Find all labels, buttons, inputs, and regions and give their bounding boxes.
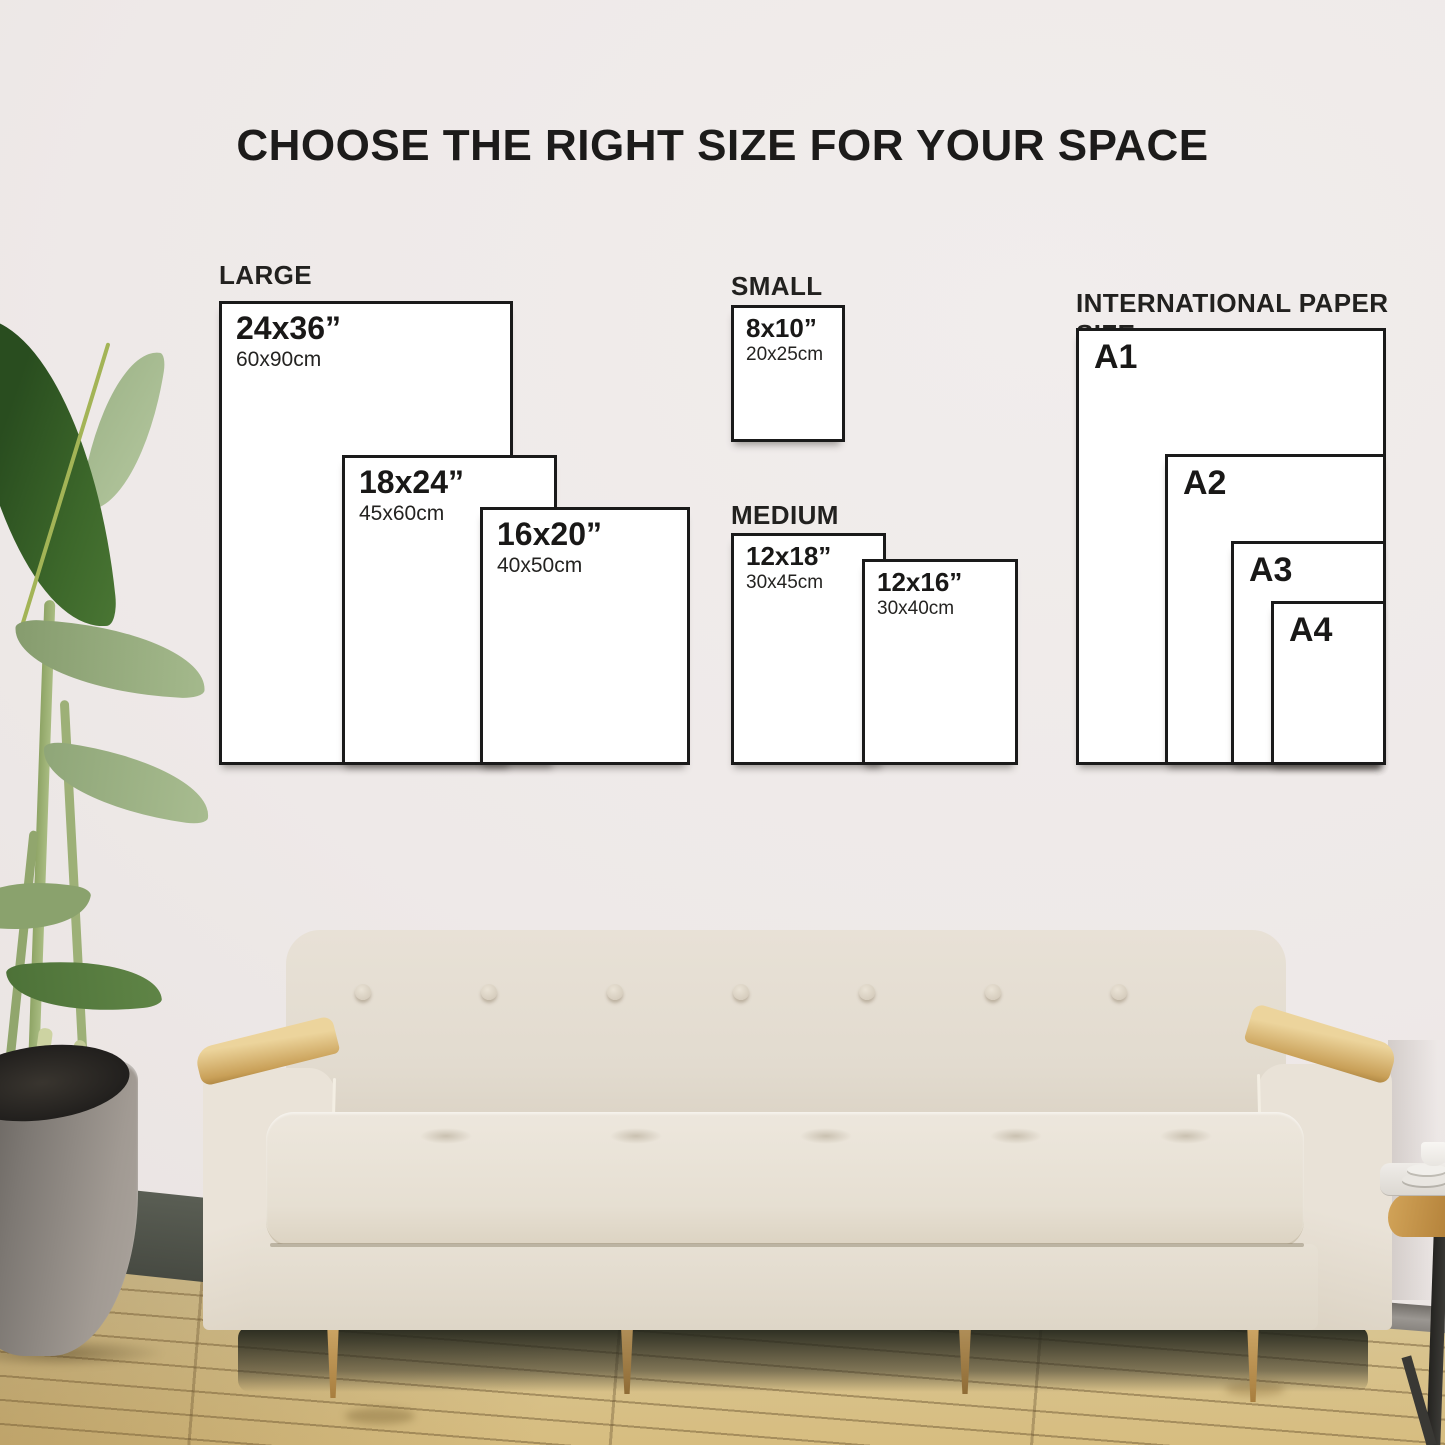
page-title: CHOOSE THE RIGHT SIZE FOR YOUR SPACE bbox=[0, 121, 1445, 171]
cushion-dimple bbox=[420, 1128, 472, 1144]
coffee-cup bbox=[1421, 1142, 1445, 1166]
size-box-a4: A4 bbox=[1271, 601, 1386, 765]
tufting-button bbox=[481, 984, 497, 1000]
tufting-button bbox=[859, 984, 875, 1000]
metric-size-label: 60x90cm bbox=[236, 348, 510, 372]
print-size-label: 18x24” bbox=[359, 465, 554, 501]
print-size-label: A3 bbox=[1249, 551, 1383, 589]
cushion-dimple bbox=[1160, 1128, 1212, 1144]
size-box-16x20: 16x20” 40x50cm bbox=[480, 507, 690, 765]
metric-size-label: 40x50cm bbox=[497, 554, 687, 578]
tufting-button bbox=[733, 984, 749, 1000]
tufting-button bbox=[355, 984, 371, 1000]
print-size-label: 16x20” bbox=[497, 517, 687, 553]
sofa-base bbox=[250, 1244, 1318, 1330]
metric-size-label: 20x25cm bbox=[746, 344, 842, 366]
cushion-seam bbox=[270, 1243, 1304, 1247]
size-box-8x10: 8x10” 20x25cm bbox=[731, 305, 845, 442]
print-size-label: 12x16” bbox=[877, 568, 1015, 597]
group-label-medium: MEDIUM bbox=[731, 500, 839, 531]
print-size-label: 24x36” bbox=[236, 311, 510, 347]
print-size-label: A1 bbox=[1094, 338, 1383, 376]
floor-stain bbox=[345, 1408, 415, 1424]
tufting-button bbox=[985, 984, 1001, 1000]
print-size-label: 8x10” bbox=[746, 314, 842, 343]
saucer bbox=[1407, 1164, 1445, 1175]
cushion-dimple bbox=[610, 1128, 662, 1144]
print-size-label: A4 bbox=[1289, 611, 1383, 649]
tufting-button bbox=[607, 984, 623, 1000]
tufting-button bbox=[1111, 984, 1127, 1000]
print-size-label: A2 bbox=[1183, 464, 1383, 502]
group-label-small: SMALL bbox=[731, 271, 823, 302]
cushion-dimple bbox=[800, 1128, 852, 1144]
under-sofa-shadow bbox=[238, 1326, 1368, 1392]
side-table-rim bbox=[1388, 1193, 1445, 1237]
size-box-12x16: 12x16” 30x40cm bbox=[862, 559, 1018, 765]
cushion-dimple bbox=[990, 1128, 1042, 1144]
metric-size-label: 30x40cm bbox=[877, 598, 1015, 620]
group-label-large: LARGE bbox=[219, 260, 312, 291]
size-guide-image: CHOOSE THE RIGHT SIZE FOR YOUR SPACE LAR… bbox=[0, 0, 1445, 1445]
